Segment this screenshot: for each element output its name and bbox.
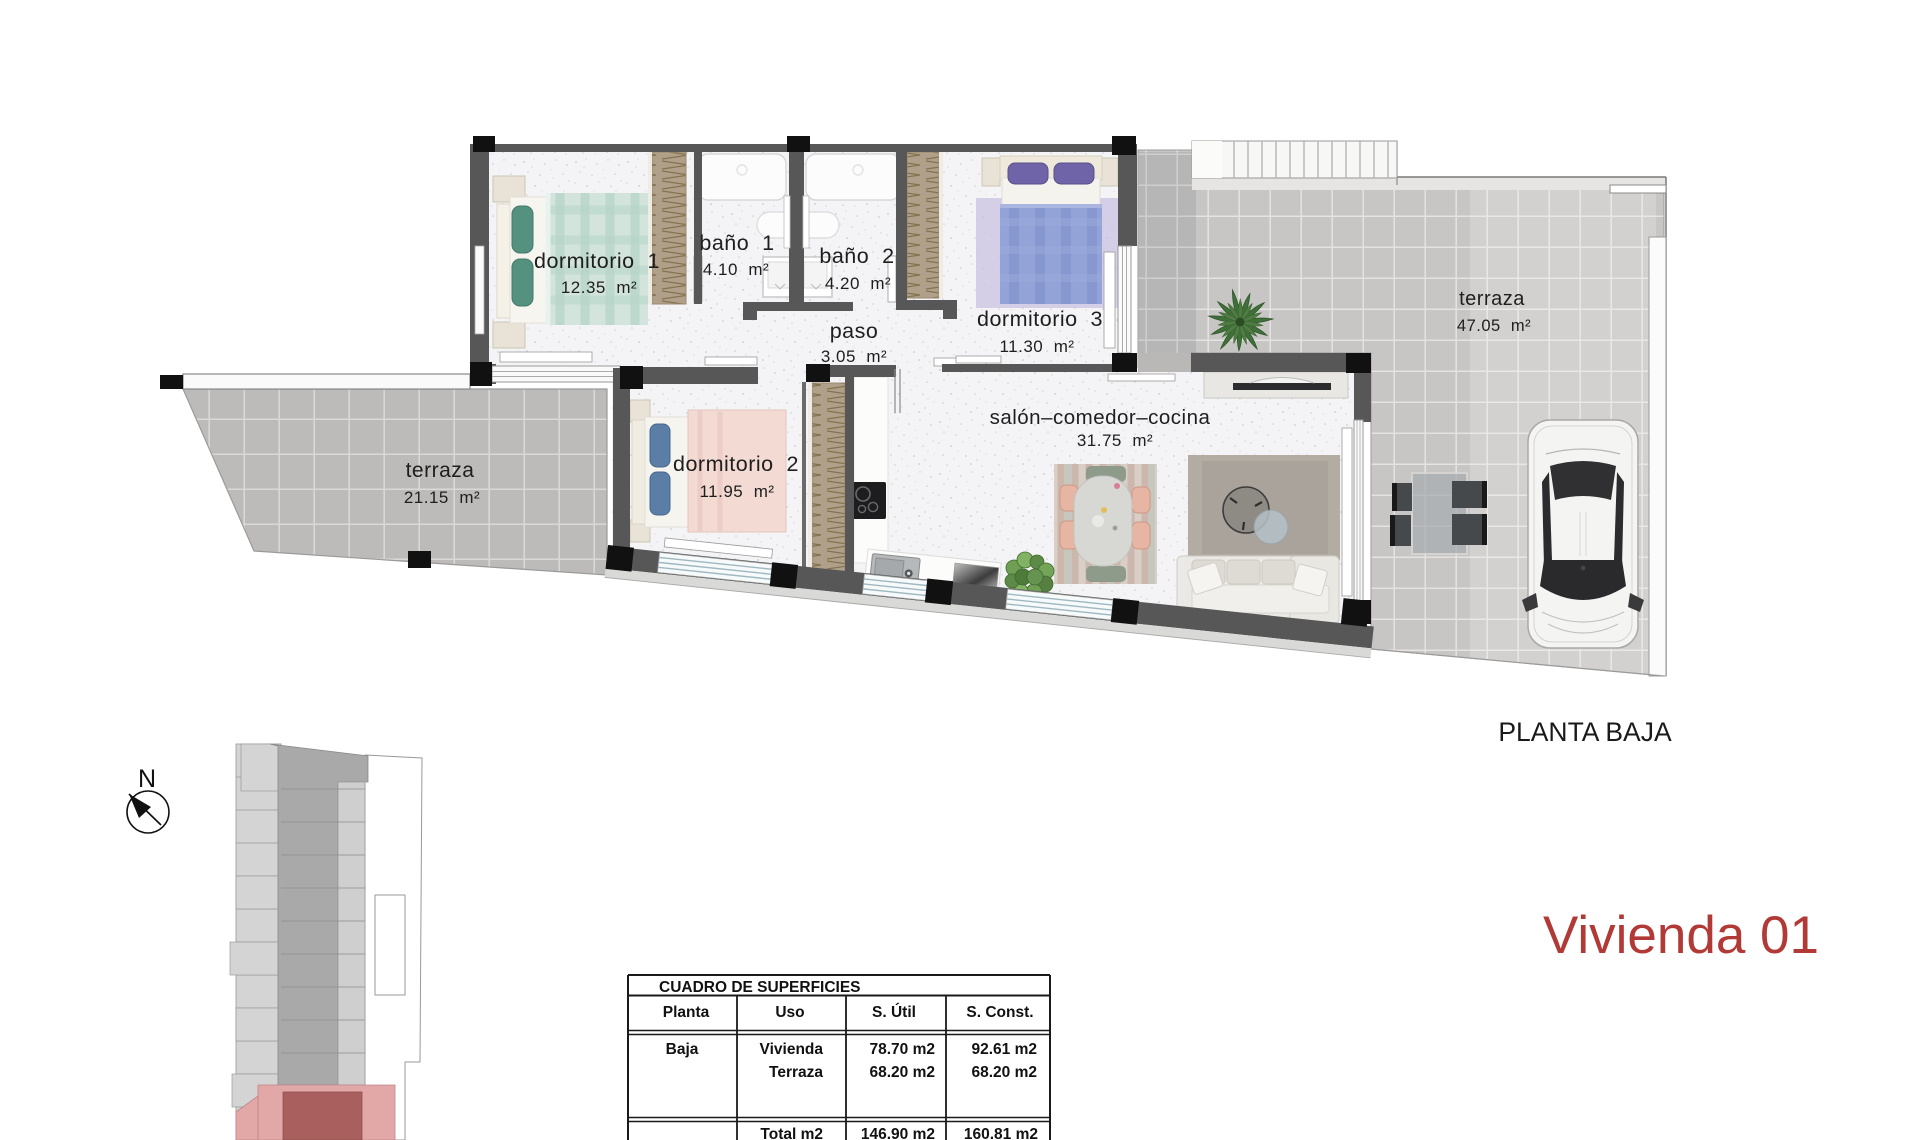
- svg-text:3.05 m²: 3.05 m²: [821, 347, 887, 366]
- svg-text:31.75 m²: 31.75 m²: [1077, 431, 1153, 450]
- svg-text:Terraza: Terraza: [769, 1064, 823, 1081]
- svg-text:terraza: terraza: [1459, 288, 1525, 310]
- svg-text:47.05 m²: 47.05 m²: [1457, 317, 1531, 335]
- svg-text:12.35 m²: 12.35 m²: [561, 278, 637, 297]
- svg-text:68.20 m2: 68.20 m2: [870, 1064, 936, 1081]
- svg-text:78.70 m2: 78.70 m2: [870, 1041, 936, 1058]
- svg-text:146.90 m2: 146.90 m2: [861, 1126, 935, 1140]
- svg-text:S. Const.: S. Const.: [966, 1004, 1033, 1021]
- svg-text:11.30 m²: 11.30 m²: [999, 337, 1074, 356]
- svg-text:11.95 m²: 11.95 m²: [699, 482, 774, 501]
- svg-text:Vivienda 01: Vivienda 01: [1543, 906, 1819, 965]
- svg-text:salón–comedor–cocina: salón–comedor–cocina: [990, 406, 1211, 429]
- svg-text:S. Útil: S. Útil: [872, 1003, 916, 1021]
- svg-text:Uso: Uso: [775, 1004, 804, 1021]
- svg-text:4.20 m²: 4.20 m²: [825, 274, 891, 293]
- svg-text:92.61 m2: 92.61 m2: [972, 1041, 1038, 1058]
- svg-text:dormitorio 3: dormitorio 3: [977, 307, 1103, 331]
- svg-text:160.81 m2: 160.81 m2: [964, 1126, 1038, 1140]
- svg-text:Total m2: Total m2: [760, 1126, 823, 1140]
- svg-text:21.15 m²: 21.15 m²: [404, 488, 480, 507]
- svg-text:N: N: [138, 765, 156, 793]
- svg-text:CUADRO DE SUPERFICIES: CUADRO DE SUPERFICIES: [659, 979, 861, 996]
- svg-text:dormitorio 1: dormitorio 1: [534, 249, 660, 273]
- svg-text:baño 1: baño 1: [699, 231, 774, 255]
- svg-text:PLANTA BAJA: PLANTA BAJA: [1498, 717, 1672, 747]
- svg-text:Baja: Baja: [666, 1041, 699, 1058]
- svg-text:Planta: Planta: [663, 1004, 710, 1021]
- svg-text:Vivienda: Vivienda: [760, 1041, 824, 1058]
- svg-text:dormitorio 2: dormitorio 2: [673, 452, 799, 476]
- svg-text:terraza: terraza: [406, 459, 475, 482]
- svg-text:baño 2: baño 2: [819, 244, 894, 268]
- svg-text:paso: paso: [830, 319, 879, 343]
- svg-text:68.20 m2: 68.20 m2: [972, 1064, 1038, 1081]
- svg-text:4.10 m²: 4.10 m²: [703, 260, 769, 279]
